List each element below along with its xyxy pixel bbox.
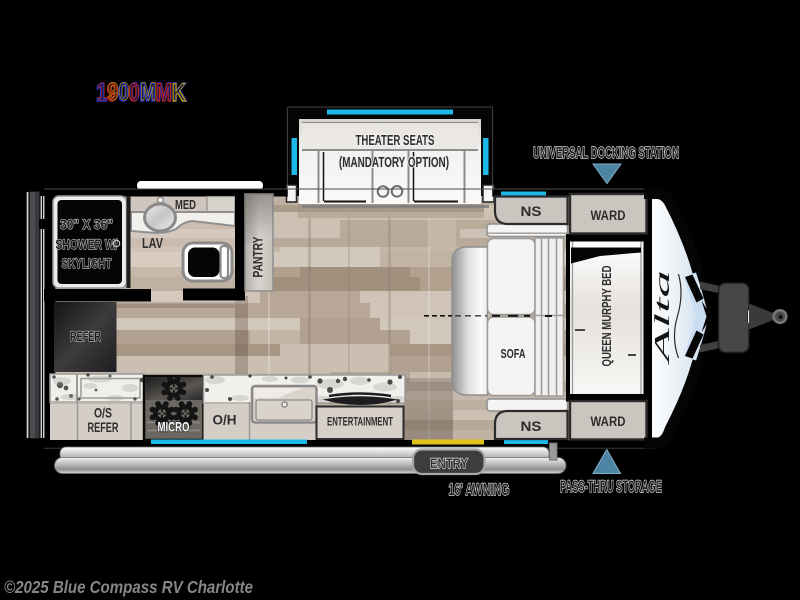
svg-text:SHOWER W/: SHOWER W/	[56, 237, 118, 252]
svg-text:16' AWNING: 16' AWNING	[449, 481, 510, 499]
svg-text:PASS-THRU STORAGE: PASS-THRU STORAGE	[560, 478, 662, 496]
svg-text:©2025 Blue Compass RV Charlott: ©2025 Blue Compass RV Charlotte	[4, 577, 253, 597]
svg-text:SOFA: SOFA	[501, 346, 526, 361]
svg-text:LAV: LAV	[142, 235, 163, 252]
svg-text:REFER: REFER	[88, 420, 119, 435]
svg-text:30" X 36": 30" X 36"	[60, 217, 113, 232]
svg-text:O/H: O/H	[213, 413, 237, 428]
svg-text:O/S: O/S	[94, 406, 112, 421]
svg-text:PANTRY: PANTRY	[250, 236, 266, 277]
svg-text:NS: NS	[521, 419, 542, 434]
svg-text:WARD: WARD	[591, 414, 626, 429]
svg-text:ENTRY: ENTRY	[430, 455, 469, 471]
svg-text:REFER: REFER	[70, 328, 101, 344]
svg-text:1900MMK: 1900MMK	[97, 78, 187, 106]
svg-text:QUEEN MURPHY BED: QUEEN MURPHY BED	[599, 266, 614, 367]
svg-text:THEATER SEATS: THEATER SEATS	[356, 133, 435, 149]
svg-text:MED: MED	[175, 197, 196, 212]
svg-text:SKYLIGHT: SKYLIGHT	[62, 256, 113, 271]
svg-text:Alta: Alta	[650, 270, 674, 367]
svg-text:NS: NS	[521, 204, 542, 219]
svg-text:WARD: WARD	[591, 208, 626, 223]
svg-text:ENTERTAINMENT: ENTERTAINMENT	[327, 415, 393, 429]
svg-text:MICRO: MICRO	[158, 419, 190, 435]
svg-text:UNIVERSAL DOCKING STATION: UNIVERSAL DOCKING STATION	[533, 145, 679, 162]
svg-text:(MANDATORY OPTION): (MANDATORY OPTION)	[339, 155, 449, 171]
